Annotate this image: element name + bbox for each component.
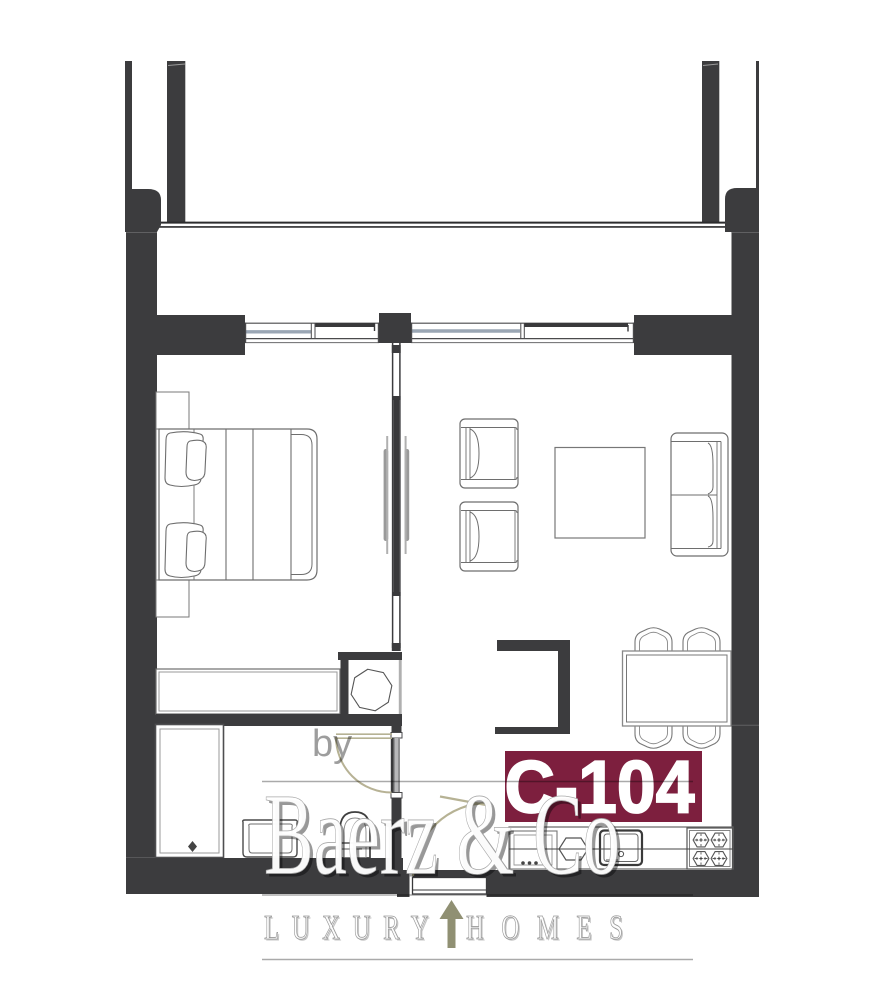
svg-text:HOMES: HOMES <box>466 908 640 947</box>
svg-text:LUXURY: LUXURY <box>264 908 441 947</box>
svg-text:Baerz & Co: Baerz & Co <box>264 771 620 900</box>
svg-text:by: by <box>312 723 352 765</box>
